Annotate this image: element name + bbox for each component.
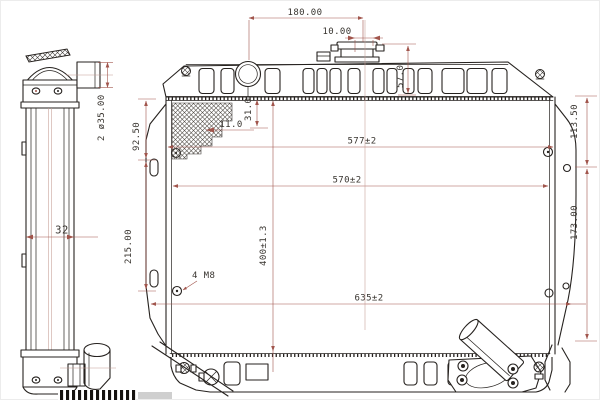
label-inlet-diameter: 2 ø35.00 <box>97 94 107 141</box>
radiator-technical-drawing: 2 ø35.00 32 <box>0 0 600 400</box>
dim-core-width-inner: 570±2 <box>173 176 548 187</box>
bracket-hole <box>563 283 569 289</box>
label-filler-to-cap: 180.00 <box>288 8 323 18</box>
front-top-tank <box>163 42 553 97</box>
label-core-height: 400±1.3 <box>259 225 269 266</box>
drawing-sheet: 2 ø35.00 32 <box>0 0 600 400</box>
barcode-fragment <box>58 390 172 400</box>
label-core-depth: 32 <box>55 225 69 237</box>
label-core-width-inner: 570±2 <box>332 176 361 186</box>
label-right-hole-span: 173.00 <box>570 205 580 240</box>
label-overall-width: 635±2 <box>354 294 383 304</box>
label-core-width-outer: 577±2 <box>347 137 376 147</box>
label-cap-height: 57.0 <box>396 65 406 88</box>
dim-neck-to-core: 31.0 <box>244 98 268 128</box>
dim-left-top-span: 92.50 <box>132 99 156 160</box>
bracket-slot <box>150 270 158 287</box>
dim-right-top-span: 113.50 <box>570 96 597 167</box>
radiator-cap <box>317 42 384 62</box>
label-mounting-holes: 4 M8 <box>192 271 215 281</box>
side-top-tank <box>21 80 79 108</box>
bracket-hole <box>564 165 571 172</box>
tank-bolt-right <box>536 70 545 80</box>
tank-bolt-left <box>182 67 191 77</box>
label-right-top-span: 113.50 <box>570 104 580 139</box>
side-radiator-cap <box>25 49 75 83</box>
label-left-top-span: 92.50 <box>132 122 142 151</box>
front-view: 180.00 10.00 57.0 31.0 11.0 <box>124 8 597 396</box>
bracket-slot <box>150 159 158 176</box>
bracket-hole <box>545 289 553 297</box>
dim-mounting-holes: 4 M8 <box>183 271 215 290</box>
label-neck-to-core: 31.0 <box>244 98 254 121</box>
side-view: 2 ø35.00 32 <box>21 49 116 394</box>
dim-core-height: 400±1.3 <box>259 101 273 372</box>
dim-overall-width: 635±2 <box>151 294 586 305</box>
outlet-pipe-assembly <box>448 317 544 392</box>
dim-core-width-outer: 577±2 <box>168 137 553 148</box>
label-cap-offset: 10.00 <box>322 27 351 37</box>
label-fin-depth: 11.0 <box>219 120 242 130</box>
fin-pattern-patch <box>172 103 232 159</box>
flange-dark-bolt <box>534 362 544 372</box>
label-left-hole-span: 215.00 <box>124 229 134 264</box>
